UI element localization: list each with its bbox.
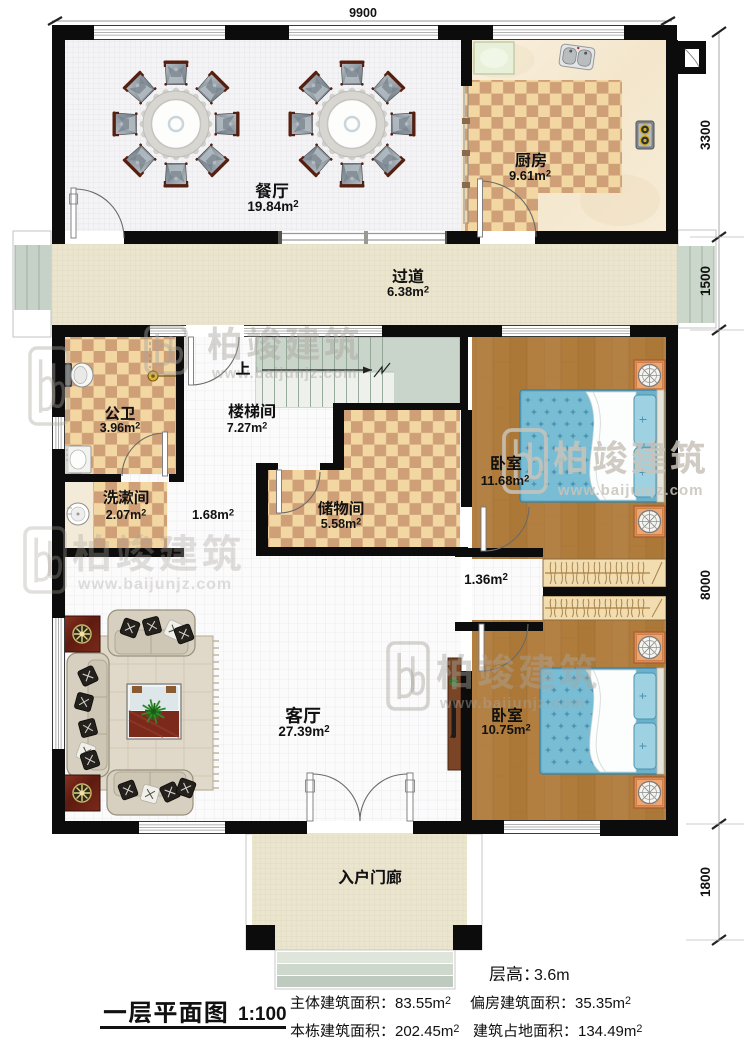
svg-text:9.61m2: 9.61m2 (509, 167, 551, 183)
svg-text:7.27m2: 7.27m2 (227, 421, 267, 436)
svg-text:1800: 1800 (698, 867, 713, 897)
svg-text:www.baijunjz.com: www.baijunjz.com (211, 365, 357, 382)
svg-text:1500: 1500 (698, 266, 713, 296)
svg-text:10.75m2: 10.75m2 (481, 721, 530, 737)
svg-text:1:100: 1:100 (238, 1004, 287, 1025)
svg-text:8000: 8000 (698, 570, 713, 600)
svg-text:6.38m2: 6.38m2 (387, 283, 429, 299)
svg-text:1.36m2: 1.36m2 (464, 572, 508, 587)
svg-text:3.96m2: 3.96m2 (100, 421, 140, 436)
svg-text:27.39m2: 27.39m2 (278, 724, 329, 739)
svg-text:www.baijunjz.com: www.baijunjz.com (77, 576, 232, 593)
svg-text:202.45m2: 202.45m2 (395, 1023, 459, 1040)
svg-text:1.68m2: 1.68m2 (192, 506, 234, 522)
svg-text:5.58m2: 5.58m2 (321, 517, 361, 532)
svg-text:3300: 3300 (698, 120, 713, 150)
svg-text:83.55m2: 83.55m2 (395, 995, 451, 1012)
svg-text:134.49m2: 134.49m2 (578, 1023, 642, 1040)
svg-text:9900: 9900 (349, 6, 377, 20)
svg-text:3.6m: 3.6m (534, 967, 570, 984)
svg-text:11.68m2: 11.68m2 (481, 472, 530, 488)
svg-text:www.baijunjz.com: www.baijunjz.com (557, 482, 703, 499)
svg-text:19.84m2: 19.84m2 (247, 199, 298, 214)
svg-text:2.07m2: 2.07m2 (106, 508, 146, 523)
svg-text:35.35m2: 35.35m2 (575, 995, 631, 1012)
